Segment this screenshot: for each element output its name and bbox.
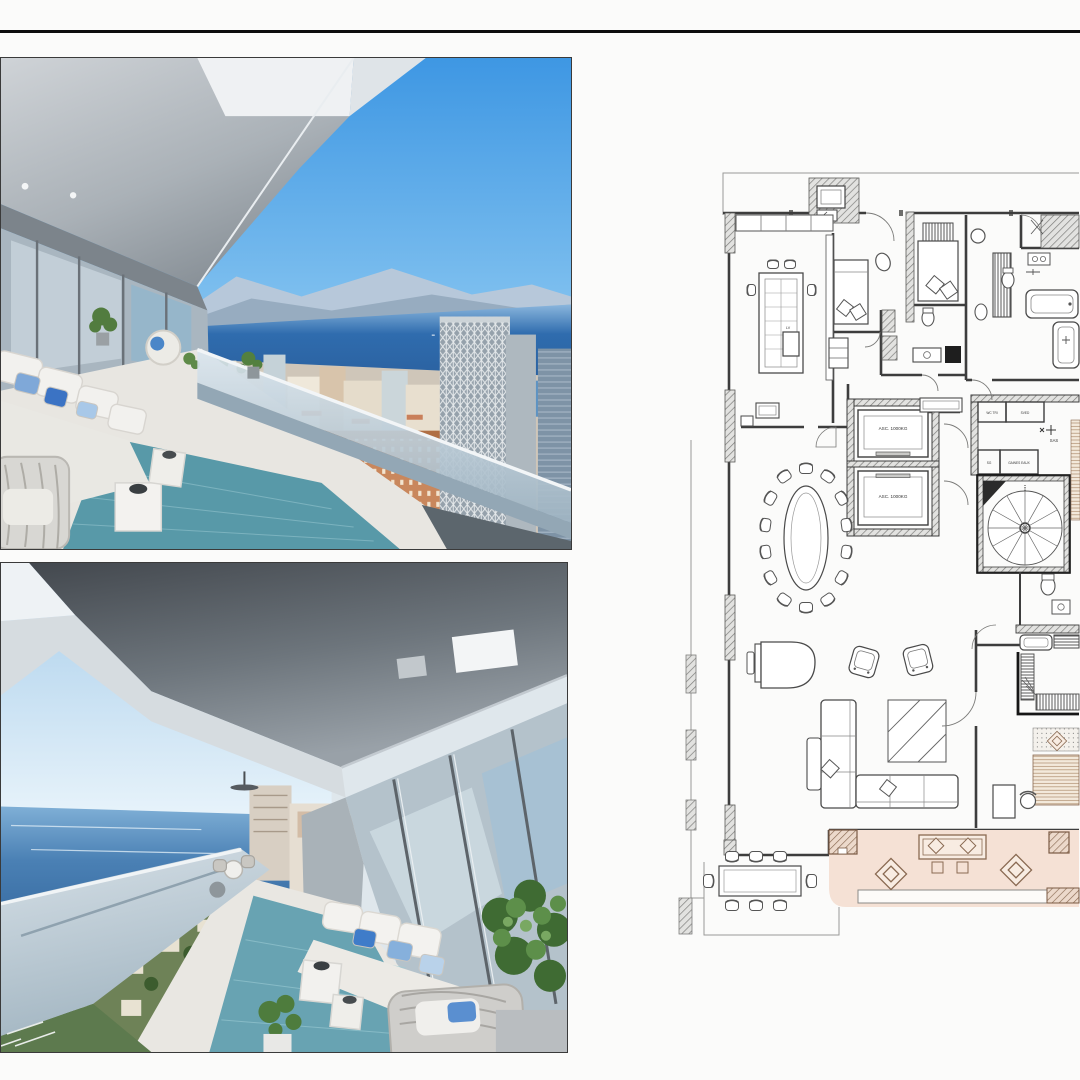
duct-left-label: GAINES EAUX	[1008, 461, 1030, 465]
photo-terrace-sea-view-graphic	[1, 563, 567, 1052]
top-divider-line	[0, 30, 1080, 33]
photo-terrace-sea-view	[0, 562, 568, 1053]
duct-top-label: SVED	[1021, 411, 1030, 415]
kitchen-dishwasher-label: LV	[786, 326, 791, 330]
sg-label: SG	[987, 461, 992, 465]
photo-terrace-city-view	[0, 57, 572, 550]
floorplan: LV ASC. 1000KG ASC. 1000K	[676, 140, 1080, 942]
sas-label: SAS	[1050, 438, 1059, 443]
photo-terrace-city-view-graphic	[1, 58, 571, 549]
wc-label: WC TRI	[986, 411, 997, 415]
elevator-2-label: ASC. 1000KG	[879, 494, 908, 499]
elevator-1-label: ASC. 1000KG	[879, 426, 908, 431]
floorplan-drawing: LV ASC. 1000KG ASC. 1000K	[676, 140, 1080, 942]
